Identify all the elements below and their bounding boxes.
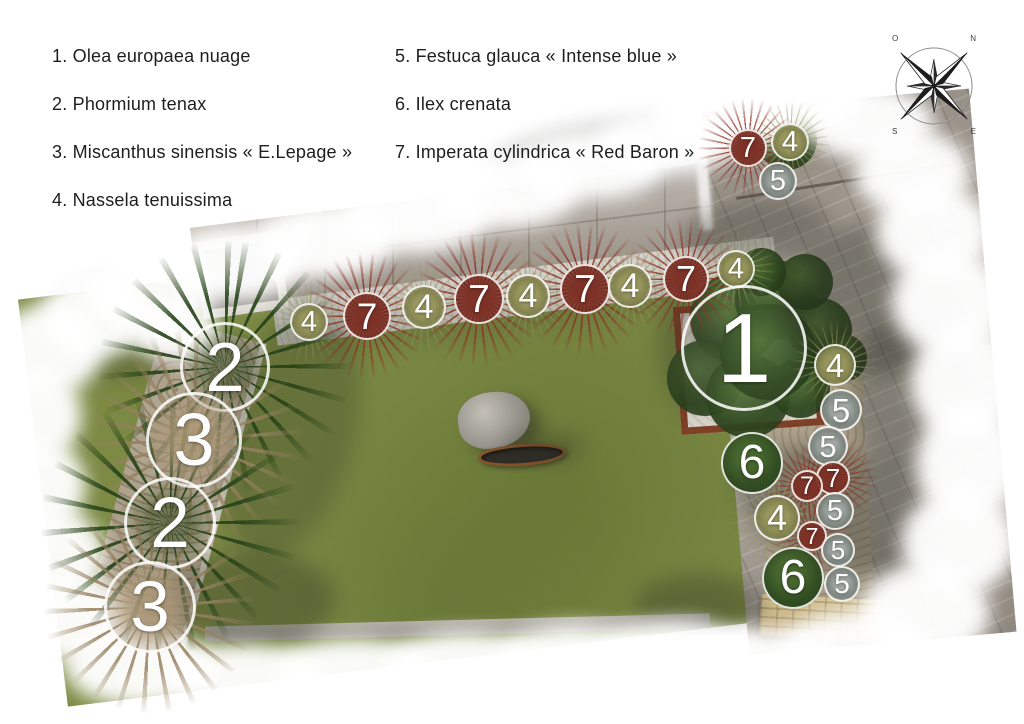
plant-marker-7: 7 [791,470,823,502]
compass-rose-icon: O N E S [884,32,984,136]
plant-marker-7: 7 [560,264,610,314]
plant-marker-4: 4 [608,264,652,308]
garden-plan-page: 47474747474516455775475652323 1. Olea eu… [0,0,1024,724]
plant-marker-4: 4 [290,303,328,341]
plant-marker-4: 4 [814,344,856,386]
compass-north-label: N [970,34,976,43]
plant-marker-6: 6 [721,432,783,494]
compass-east-label: E [971,127,976,136]
plant-marker-4: 4 [506,274,550,318]
plant-marker-7: 7 [454,274,504,324]
compass-west-label: O [892,34,898,43]
legend-item-7: 7. Imperata cylindrica « Red Baron » [395,142,694,163]
plant-marker-5: 5 [759,162,797,200]
plant-marker-2: 2 [124,477,216,569]
plant-marker-6: 6 [762,547,824,609]
plant-marker-7: 7 [729,129,767,167]
plant-marker-5: 5 [821,533,855,567]
plant-marker-5: 5 [808,426,848,466]
compass-south-label: S [892,127,897,136]
legend-item-1: 1. Olea europaea nuage [52,46,352,67]
legend-column-2: 5. Festuca glauca « Intense blue » 6. Il… [395,46,694,163]
plant-marker-4: 4 [402,285,446,329]
legend-item-6: 6. Ilex crenata [395,94,694,115]
legend-item-4: 4. Nassela tenuissima [52,190,352,211]
plant-marker-5: 5 [820,389,862,431]
legend-item-3: 3. Miscanthus sinensis « E.Lepage » [52,142,352,163]
legend-item-5: 5. Festuca glauca « Intense blue » [395,46,694,67]
plant-marker-3: 3 [146,392,242,488]
plant-marker-5: 5 [824,566,860,602]
plant-marker-4: 4 [754,495,800,541]
legend-item-2: 2. Phormium tenax [52,94,352,115]
plant-marker-4: 4 [771,123,809,161]
plant-marker-7: 7 [343,292,391,340]
plant-marker-3: 3 [104,561,196,653]
plant-marker-7: 7 [663,256,709,302]
plant-marker-1: 1 [681,285,807,411]
plant-marker-4: 4 [717,250,755,288]
legend-column-1: 1. Olea europaea nuage 2. Phormium tenax… [52,46,352,211]
